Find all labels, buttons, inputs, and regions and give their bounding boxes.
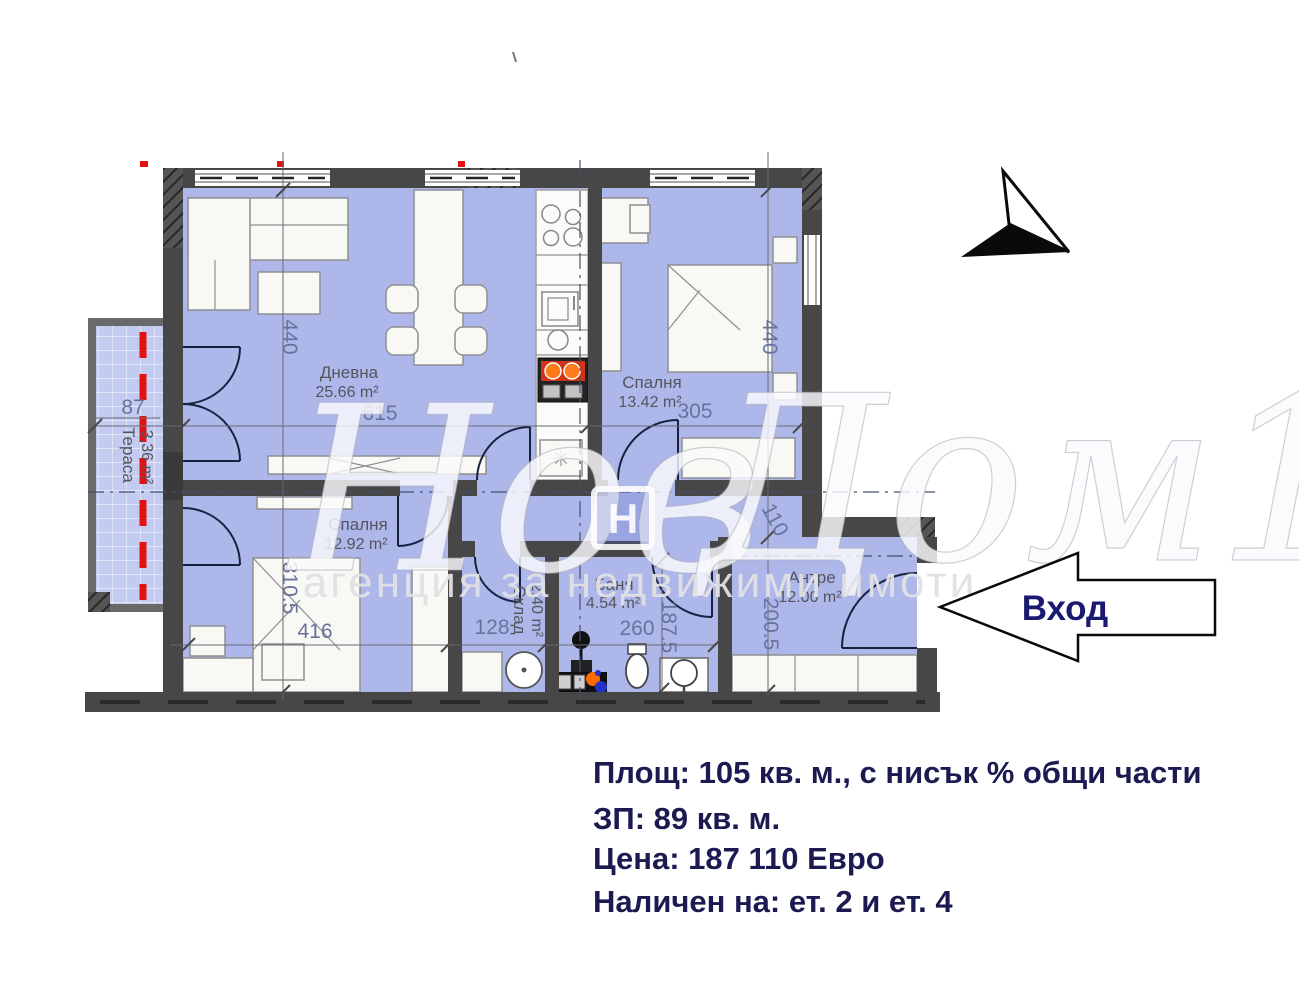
room-label-terrace: Тераса bbox=[119, 427, 138, 483]
dim-living-h: 440 bbox=[278, 319, 301, 354]
offer-line-price: Цена: 187 110 Евро bbox=[593, 841, 885, 876]
offer-line-area: Площ: 105 кв. м., с нисък % общи части bbox=[593, 755, 1202, 790]
window-bedroom-top bbox=[650, 170, 755, 186]
offer-line-floors: Наличен на: ет. 2 и ет. 4 bbox=[593, 884, 953, 919]
basin-icon bbox=[660, 658, 708, 694]
entrance-arrow-label: Вход bbox=[1022, 589, 1109, 628]
window-living-2 bbox=[425, 170, 520, 186]
north-arrow-icon bbox=[961, 171, 1069, 257]
storage-fixtures bbox=[462, 652, 542, 692]
offer-details: Площ: 105 кв. м., с нисък % общи части З… bbox=[593, 755, 1202, 919]
floor-plan-canvas: Тераса 3.36 m² 87 bbox=[0, 0, 1299, 1000]
toilet-icon bbox=[626, 644, 648, 688]
lamp-icon bbox=[572, 631, 590, 649]
window-living-1 bbox=[195, 170, 330, 186]
window-bedroom-right bbox=[804, 235, 820, 305]
watermark-tagline: агенция за недвижими имоти bbox=[303, 558, 978, 607]
room-area-terrace: 3.36 m² bbox=[138, 430, 155, 485]
dim-terrace-width: 87 bbox=[121, 396, 144, 419]
stray-mark bbox=[513, 52, 516, 62]
watermark-logo-letter: H bbox=[608, 495, 638, 542]
watermark-logo: H bbox=[594, 489, 652, 547]
hallway-wardrobe bbox=[732, 655, 917, 692]
offer-line-built: ЗП: 89 кв. м. bbox=[593, 801, 780, 836]
floor-plan-page: Тераса 3.36 m² 87 bbox=[0, 0, 1299, 1000]
